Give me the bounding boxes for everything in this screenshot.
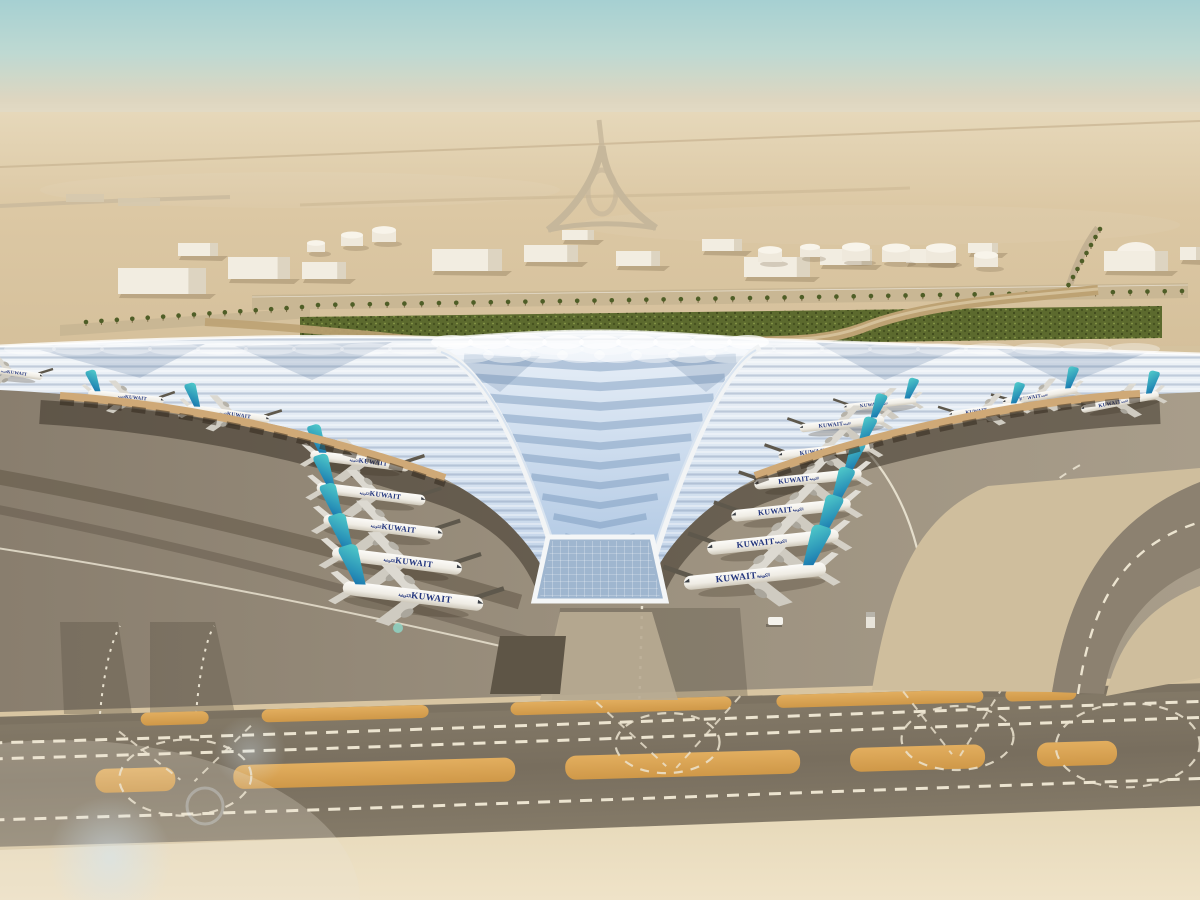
palm-tree <box>1080 259 1085 264</box>
palm-tree <box>523 299 528 304</box>
palm-tree <box>1075 267 1080 272</box>
palm-tree <box>489 300 494 305</box>
airport-aerial-rendering: KUWAITالكويتيةKUWAITالكويتيةKUWAITالكويت… <box>0 0 1200 900</box>
palm-tree <box>938 293 943 298</box>
palm-tree <box>419 301 424 306</box>
palm-tree <box>1162 289 1167 294</box>
palm-tree <box>506 300 511 305</box>
palm-tree <box>921 293 926 298</box>
palm-tree <box>253 308 258 313</box>
palm-tree <box>99 319 104 324</box>
taxiway-island <box>850 744 986 772</box>
palm-tree <box>972 292 977 297</box>
service-car <box>768 617 783 625</box>
palm-tree <box>748 296 753 301</box>
palm-tree <box>609 298 614 303</box>
palm-tree <box>1128 290 1133 295</box>
palm-tree <box>782 295 787 300</box>
palm-tree <box>84 320 89 325</box>
palm-tree <box>1089 243 1094 248</box>
palm-tree <box>644 297 649 302</box>
palm-tree <box>575 299 580 304</box>
taxiway-island <box>141 711 209 726</box>
palm-tree <box>437 301 442 306</box>
palm-tree <box>661 297 666 302</box>
palm-tree <box>1071 275 1076 280</box>
palm-tree <box>1145 289 1150 294</box>
palm-tree <box>402 301 407 306</box>
palm-tree <box>1111 290 1116 295</box>
flare-dot <box>393 623 403 633</box>
palm-tree <box>834 294 839 299</box>
palm-tree <box>284 306 289 311</box>
palm-tree <box>333 302 338 307</box>
sky <box>0 0 1200 118</box>
aircraft-title-arabic: الكويتية <box>843 421 851 426</box>
palm-tree <box>1180 289 1185 294</box>
palm-tree <box>886 293 891 298</box>
palm-tree <box>192 312 197 317</box>
palm-tree <box>1098 227 1103 232</box>
palm-tree <box>316 303 321 308</box>
palm-tree <box>269 307 274 312</box>
palm-tree <box>730 296 735 301</box>
palm-tree <box>1066 283 1071 288</box>
palm-tree <box>238 309 243 314</box>
palm-tree <box>471 300 476 305</box>
palm-tree <box>1093 235 1098 240</box>
palm-tree <box>592 298 597 303</box>
palm-tree <box>627 298 632 303</box>
palm-tree <box>1084 251 1089 256</box>
palm-tree <box>679 297 684 302</box>
scene-canvas: KUWAITالكويتيةKUWAITالكويتيةKUWAITالكويت… <box>0 0 1200 900</box>
taxiway-island <box>1037 741 1118 767</box>
palm-tree <box>161 314 166 319</box>
palm-tree <box>903 293 908 298</box>
palm-tree <box>765 295 770 300</box>
palm-tree <box>350 302 355 307</box>
palm-tree <box>207 311 212 316</box>
palm-tree <box>115 318 120 323</box>
palm-tree <box>368 302 373 307</box>
palm-tree <box>540 299 545 304</box>
palm-tree <box>223 310 228 315</box>
palm-tree <box>145 315 150 320</box>
palm-tree <box>869 294 874 299</box>
palm-tree <box>454 300 459 305</box>
palm-tree <box>696 297 701 302</box>
palm-tree <box>300 305 305 310</box>
palm-tree <box>130 316 135 321</box>
palm-tree <box>713 296 718 301</box>
palm-tree <box>955 292 960 297</box>
palm-tree <box>851 294 856 299</box>
palm-tree <box>817 295 822 300</box>
palm-tree <box>800 295 805 300</box>
palm-tree <box>385 302 390 307</box>
palm-tree <box>558 299 563 304</box>
palm-tree <box>176 313 181 318</box>
